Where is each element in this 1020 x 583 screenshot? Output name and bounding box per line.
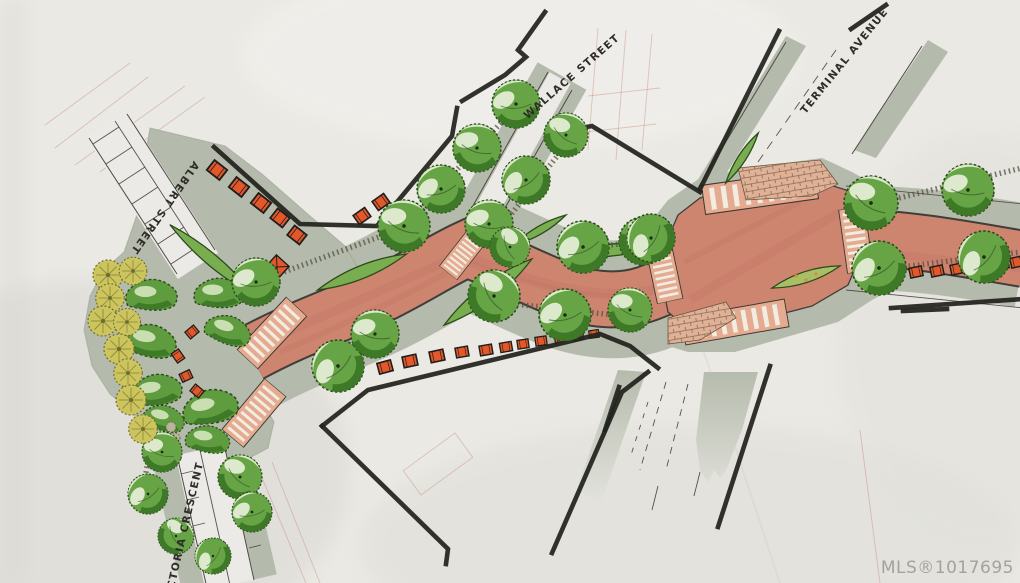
plan-photo: WALLACE STREET TERMINAL AVENUE ALBERT ST… bbox=[0, 0, 1020, 583]
streetscape-plan-drawing: WALLACE STREET TERMINAL AVENUE ALBERT ST… bbox=[0, 0, 1020, 583]
mls-watermark: MLS®1017695 bbox=[881, 558, 1014, 578]
